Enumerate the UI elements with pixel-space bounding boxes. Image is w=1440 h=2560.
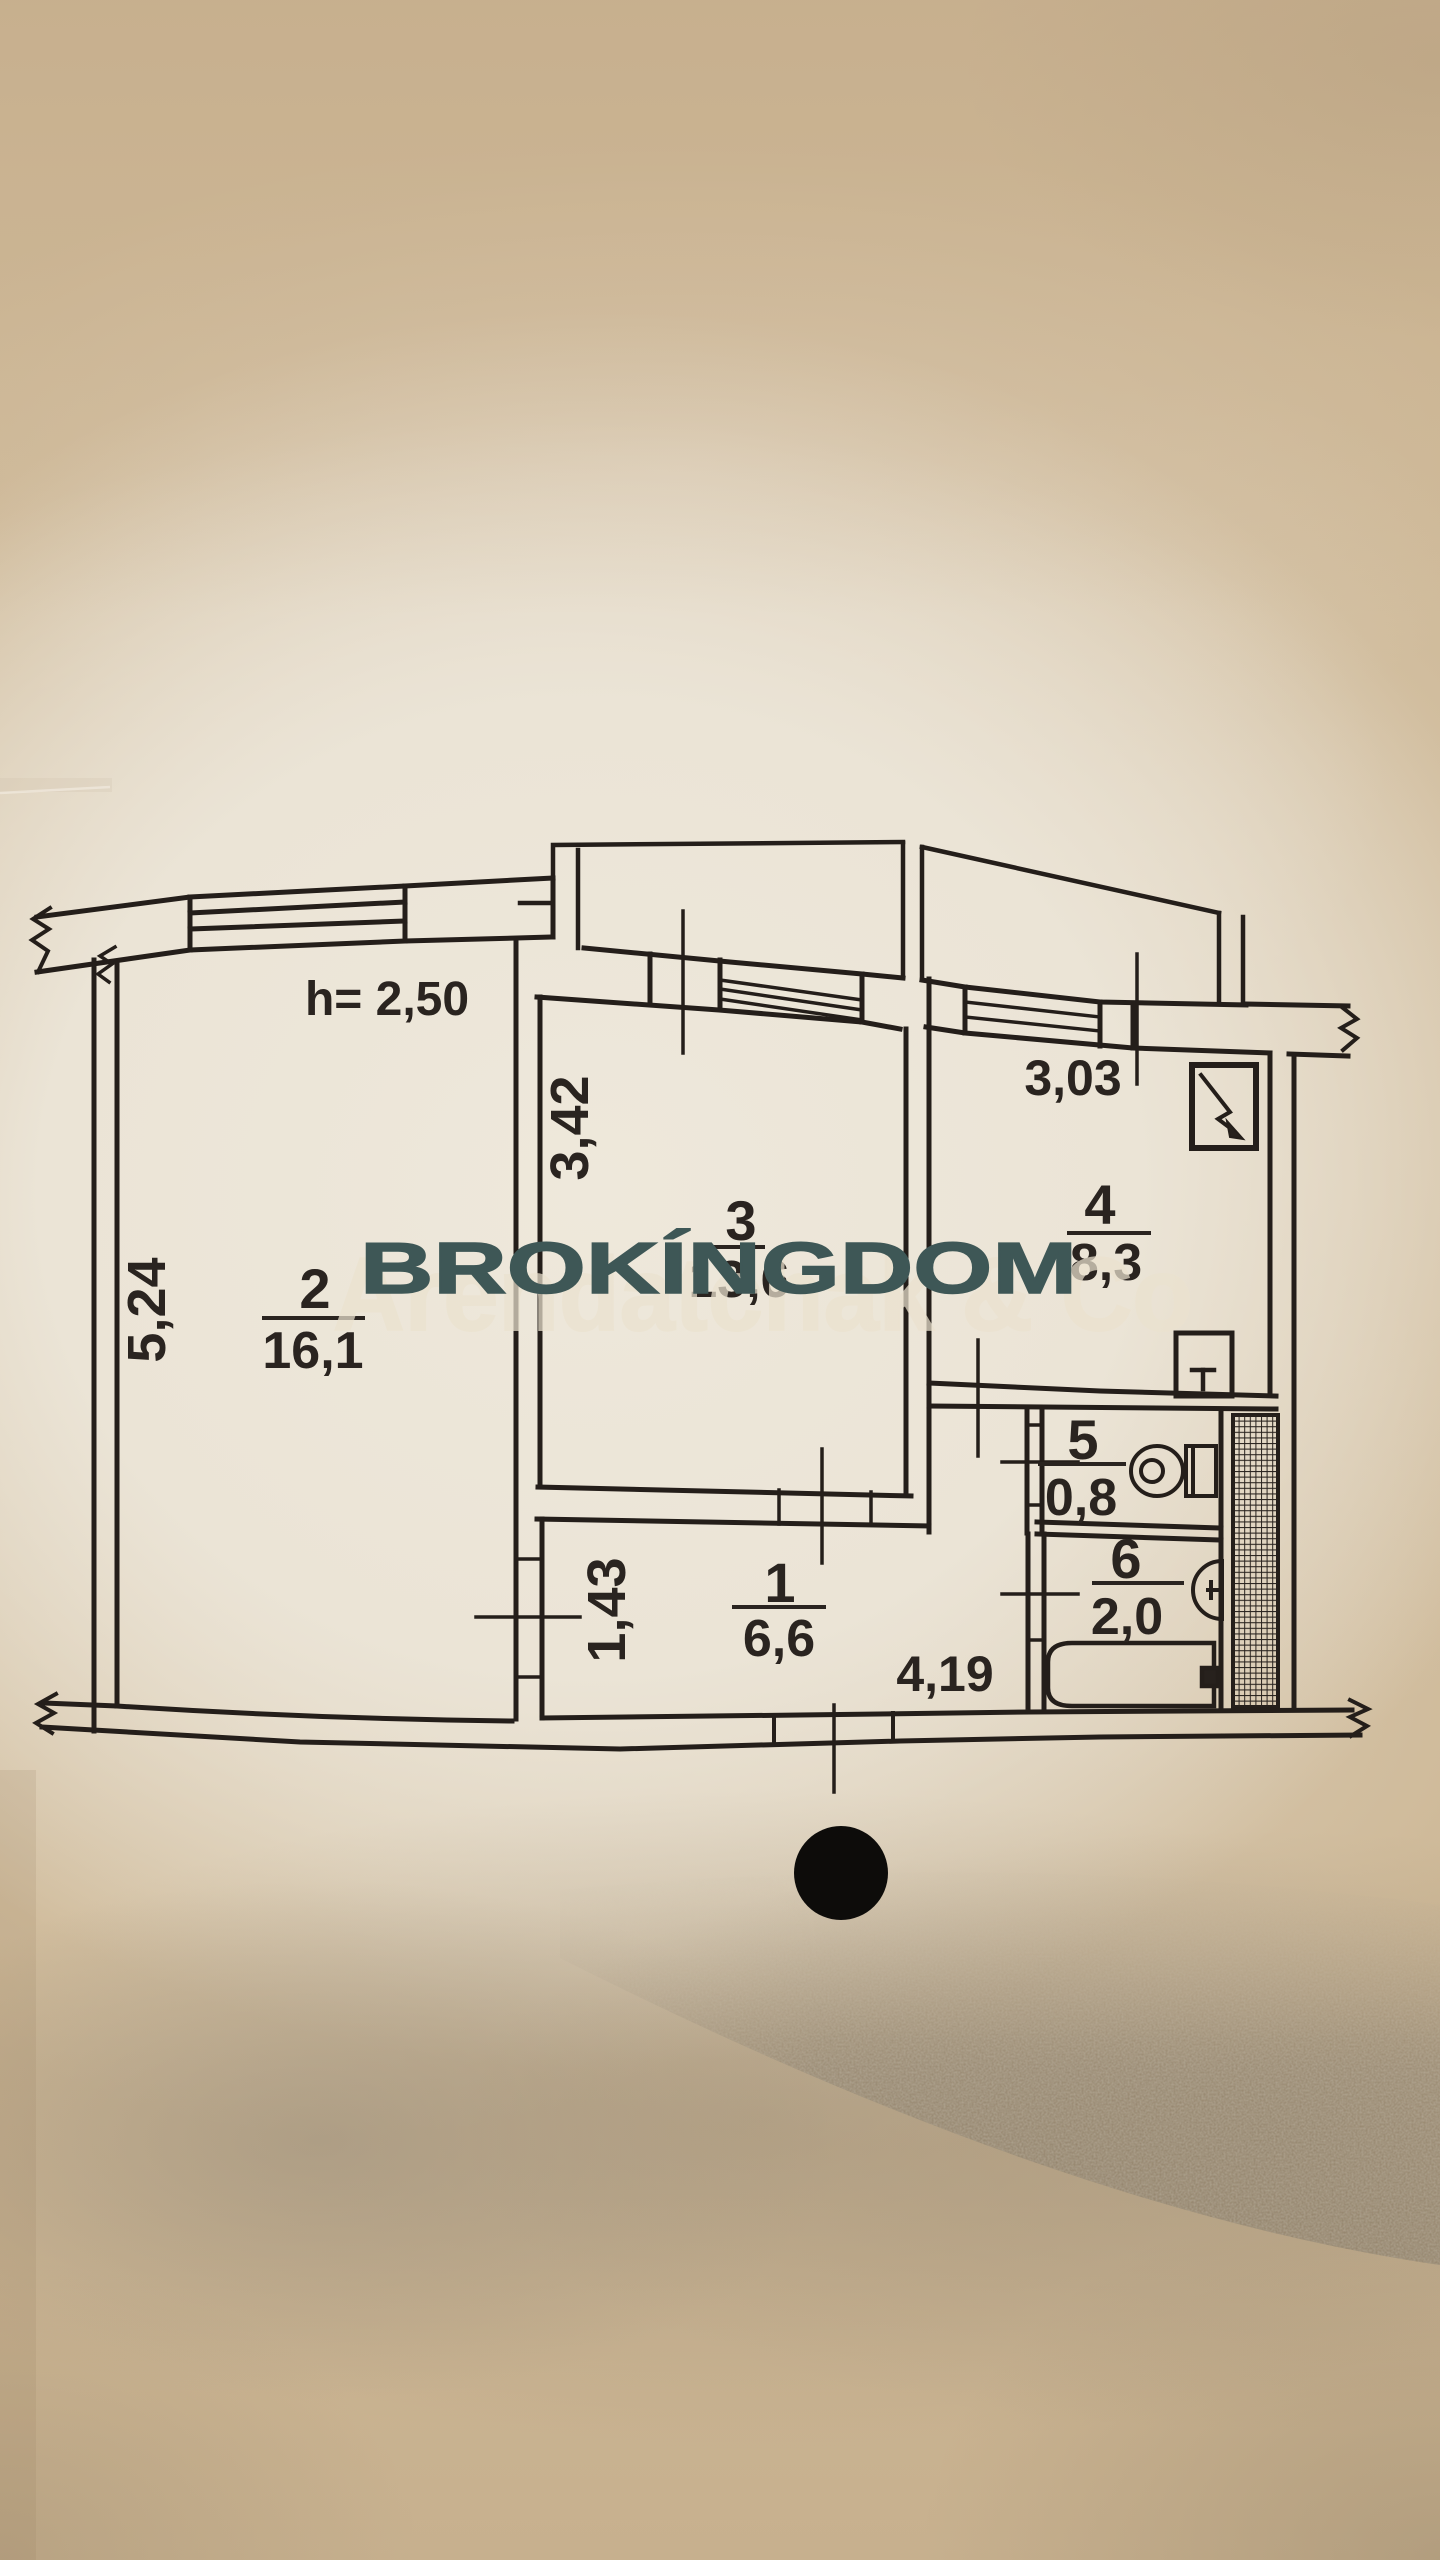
svg-text:5,24: 5,24 xyxy=(117,1257,177,1362)
svg-text:4,19: 4,19 xyxy=(896,1646,993,1702)
svg-text:3,42: 3,42 xyxy=(540,1075,600,1180)
svg-text:6,6: 6,6 xyxy=(743,1610,815,1668)
svg-text:h= 2,50: h= 2,50 xyxy=(305,973,469,1026)
svg-text:2: 2 xyxy=(299,1257,330,1320)
svg-text:3,03: 3,03 xyxy=(1024,1050,1121,1106)
svg-text:6: 6 xyxy=(1110,1527,1141,1590)
svg-text:1,43: 1,43 xyxy=(577,1557,637,1662)
svg-text:2,0: 2,0 xyxy=(1091,1588,1163,1646)
svg-text:5: 5 xyxy=(1067,1408,1098,1471)
svg-text:BROKÍNGDOM: BROKÍNGDOM xyxy=(360,1229,1077,1309)
svg-text:4: 4 xyxy=(1084,1173,1115,1236)
svg-text:1: 1 xyxy=(764,1551,795,1614)
svg-text:0,8: 0,8 xyxy=(1045,1469,1117,1527)
